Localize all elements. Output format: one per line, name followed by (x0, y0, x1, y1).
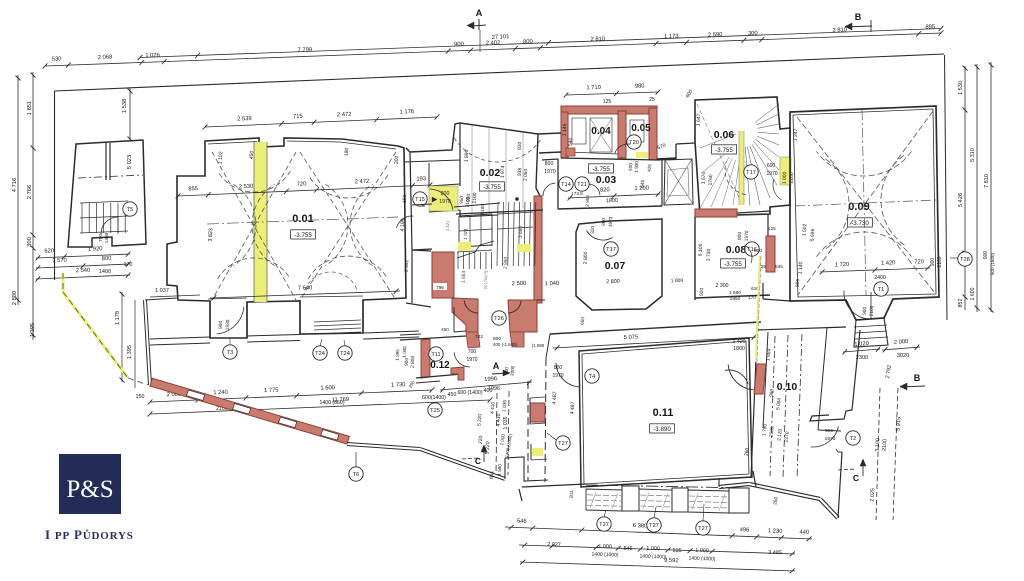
svg-text:800: 800 (523, 39, 533, 45)
svg-text:T6: T6 (353, 472, 360, 478)
svg-text:1800: 1800 (733, 346, 745, 352)
svg-text:1 000: 1 000 (782, 171, 789, 184)
svg-text:P&S: P&S (66, 476, 113, 503)
svg-text:1 974: 1 974 (500, 165, 507, 178)
svg-text:T28: T28 (960, 257, 970, 263)
svg-text:1 176: 1 176 (399, 109, 414, 116)
svg-text:806: 806 (795, 278, 801, 287)
svg-text:1 775: 1 775 (264, 387, 279, 394)
svg-text:11 769: 11 769 (332, 397, 350, 404)
svg-text:1 173: 1 173 (664, 34, 679, 41)
svg-text:545: 545 (623, 546, 632, 552)
svg-text:3 485: 3 485 (768, 550, 782, 556)
svg-text:2 025: 2 025 (870, 488, 877, 502)
svg-text:T17: T17 (606, 247, 616, 253)
svg-text:1 720: 1 720 (835, 262, 850, 269)
svg-text:T15: T15 (415, 197, 425, 203)
svg-text:855: 855 (188, 186, 198, 192)
svg-text:0.01: 0.01 (292, 213, 313, 225)
svg-text:5 696: 5 696 (810, 228, 817, 241)
svg-text:0.06: 0.06 (714, 129, 735, 141)
svg-text:5 428: 5 428 (958, 193, 964, 207)
svg-text:2100: 2100 (869, 305, 876, 316)
svg-text:1970: 1970 (766, 171, 777, 177)
svg-text:700: 700 (98, 234, 104, 242)
svg-text:I PP PŮDORYS: I PP PŮDORYS (45, 527, 134, 542)
svg-text:450: 450 (441, 327, 449, 332)
svg-text:-3.755: -3.755 (483, 184, 501, 191)
svg-text:2 590: 2 590 (708, 32, 723, 39)
svg-text:200: 200 (394, 155, 400, 164)
svg-text:1970: 1970 (544, 169, 556, 175)
svg-text:2100: 2100 (472, 192, 479, 203)
svg-text:320: 320 (590, 226, 595, 234)
svg-text:1 570: 1 570 (52, 258, 67, 265)
svg-text:1 670: 1 670 (701, 171, 708, 184)
svg-text:1 900: 1 900 (634, 161, 640, 173)
svg-text:3 680: 3 680 (518, 225, 525, 238)
svg-text:1 890: 1 890 (464, 149, 471, 162)
svg-text:700: 700 (468, 349, 477, 355)
svg-text:715: 715 (293, 114, 303, 120)
svg-text:2 766: 2 766 (27, 185, 33, 200)
svg-text:620: 620 (44, 248, 54, 254)
svg-text:1 502: 1 502 (802, 223, 809, 236)
svg-text:300: 300 (748, 31, 758, 37)
svg-text:5 915: 5 915 (896, 417, 903, 431)
svg-text:A: A (476, 8, 483, 18)
svg-text:3 100: 3 100 (875, 438, 882, 452)
svg-text:173,5: 173,5 (571, 191, 583, 196)
svg-text:T27: T27 (599, 522, 609, 528)
svg-text:920: 920 (699, 287, 705, 296)
svg-text:9 592: 9 592 (664, 558, 679, 564)
svg-text:545: 545 (640, 179, 646, 188)
svg-text:T27: T27 (649, 523, 659, 529)
svg-text:2 552: 2 552 (404, 259, 411, 272)
svg-text:T27: T27 (558, 441, 568, 447)
svg-text:1 121: 1 121 (445, 220, 451, 231)
svg-text:2 800: 2 800 (606, 279, 620, 285)
svg-text:T3: T3 (227, 350, 234, 356)
svg-text:1 037: 1 037 (155, 288, 169, 294)
svg-text:180: 180 (344, 147, 350, 156)
svg-text:125: 125 (768, 226, 776, 231)
svg-text:5 023: 5 023 (127, 155, 133, 170)
svg-text:1930: 1930 (225, 319, 232, 330)
svg-text:T20: T20 (629, 140, 639, 146)
svg-text:2 800: 2 800 (410, 355, 417, 368)
svg-text:T2: T2 (850, 436, 857, 442)
svg-text:2 027: 2 027 (547, 542, 561, 548)
svg-text:1970: 1970 (608, 216, 614, 227)
svg-text:7 640: 7 640 (298, 285, 313, 292)
svg-text:440: 440 (799, 530, 809, 536)
svg-text:600: 600 (493, 336, 501, 342)
svg-text:1 653: 1 653 (461, 270, 468, 283)
svg-text:1400: 1400 (99, 269, 111, 275)
svg-text:600(1400): 600(1400) (422, 395, 446, 401)
svg-text:900: 900 (454, 42, 464, 48)
svg-text:-3.730: -3.730 (851, 220, 869, 227)
svg-text:6 380: 6 380 (633, 523, 648, 530)
svg-text:1 021: 1 021 (463, 228, 469, 240)
svg-text:852: 852 (958, 299, 964, 308)
svg-text:T27: T27 (698, 526, 708, 532)
svg-text:1 600: 1 600 (970, 287, 976, 300)
svg-text:T5: T5 (127, 207, 134, 213)
svg-text:1 240: 1 240 (213, 390, 228, 397)
svg-text:-3.755: -3.755 (724, 261, 742, 268)
svg-text:-3.755: -3.755 (715, 147, 733, 154)
svg-text:796: 796 (436, 285, 444, 290)
svg-text:170: 170 (124, 262, 133, 268)
svg-text:1 395: 1 395 (127, 345, 133, 359)
svg-text:-3.755: -3.755 (294, 232, 312, 239)
svg-text:450: 450 (448, 392, 457, 398)
svg-text:T14: T14 (561, 182, 571, 188)
svg-text:530: 530 (52, 56, 62, 62)
svg-text:C: C (475, 456, 481, 466)
svg-text:0.03: 0.03 (596, 174, 617, 186)
svg-text:1 178: 1 178 (115, 311, 121, 325)
svg-text:3 823: 3 823 (208, 228, 215, 242)
svg-text:1 395: 1 395 (395, 349, 401, 361)
svg-text:2100: 2100 (882, 439, 889, 451)
svg-text:4 410: 4 410 (489, 401, 496, 414)
svg-text:1 530: 1 530 (958, 81, 964, 95)
svg-text:2 990: 2 990 (503, 256, 510, 269)
svg-text:0.12: 0.12 (430, 360, 450, 371)
svg-text:800: 800 (737, 231, 743, 240)
svg-text:1 140: 1 140 (798, 261, 805, 274)
svg-text:193: 193 (402, 194, 408, 203)
svg-text:2 000: 2 000 (894, 339, 909, 346)
svg-text:2 880: 2 880 (12, 291, 18, 306)
svg-text:2 402: 2 402 (486, 40, 501, 47)
svg-text:2 810: 2 810 (590, 36, 605, 43)
svg-text:1 000: 1 000 (646, 546, 660, 552)
svg-text:B: B (855, 12, 862, 22)
svg-text:A: A (493, 361, 500, 371)
svg-text:1 395: 1 395 (30, 323, 36, 338)
svg-text:1 102: 1 102 (218, 151, 225, 164)
svg-text:150: 150 (136, 394, 145, 400)
svg-text:193: 193 (416, 176, 426, 182)
svg-text:2 472: 2 472 (355, 179, 370, 186)
svg-text:2 050: 2 050 (523, 168, 530, 181)
svg-text:T24: T24 (340, 351, 350, 357)
svg-text:400 (-1.840): 400 (-1.840) (493, 342, 517, 347)
svg-text:1970: 1970 (552, 373, 563, 379)
svg-text:820: 820 (600, 187, 610, 193)
svg-text:2 300: 2 300 (716, 283, 729, 289)
svg-text:900: 900 (218, 320, 224, 329)
svg-text:1 000: 1 000 (671, 278, 684, 284)
svg-text:1 420: 1 420 (881, 260, 896, 267)
svg-text:4 487: 4 487 (570, 401, 577, 414)
svg-text:1350: 1350 (104, 232, 110, 243)
svg-text:1 730: 1 730 (391, 382, 406, 389)
svg-text:1 035: 1 035 (503, 416, 509, 429)
svg-text:900: 900 (504, 366, 510, 375)
svg-text:1996: 1996 (484, 376, 497, 383)
svg-text:800: 800 (102, 256, 112, 262)
svg-text:7 810: 7 810 (984, 174, 990, 188)
svg-text:0.09: 0.09 (848, 201, 869, 213)
svg-text:1 145: 1 145 (562, 123, 569, 136)
svg-text:220: 220 (478, 435, 485, 444)
svg-text:2 540: 2 540 (76, 268, 91, 275)
svg-text:980: 980 (635, 83, 645, 89)
svg-text:5 310: 5 310 (970, 148, 976, 162)
svg-text:0.05: 0.05 (631, 123, 651, 134)
svg-text:1 580: 1 580 (729, 290, 741, 296)
svg-text:650: 650 (580, 317, 585, 325)
svg-text:T25: T25 (430, 408, 440, 414)
svg-text:6 100: 6 100 (698, 243, 705, 256)
svg-text:1 580: 1 580 (497, 463, 503, 475)
svg-text:496: 496 (739, 527, 749, 533)
svg-text:T17: T17 (746, 170, 756, 176)
svg-text:900: 900 (983, 251, 989, 260)
svg-text:0.08: 0.08 (726, 244, 747, 256)
svg-text:T26: T26 (494, 316, 504, 322)
svg-text:720: 720 (297, 181, 307, 187)
svg-text:0.04: 0.04 (591, 126, 611, 137)
svg-text:-3.755: -3.755 (592, 166, 610, 173)
svg-text:2 068: 2 068 (98, 55, 113, 62)
svg-text:800: 800 (545, 161, 554, 167)
svg-text:980: 980 (769, 388, 776, 397)
svg-text:1 651: 1 651 (27, 101, 33, 116)
svg-text:1400 (1000): 1400 (1000) (688, 556, 715, 563)
svg-text:1970: 1970 (744, 230, 751, 241)
svg-text:600: 600 (767, 163, 776, 169)
svg-text:2 500: 2 500 (512, 281, 527, 288)
svg-text:125: 125 (603, 99, 612, 105)
svg-text:1 026: 1 026 (145, 53, 160, 60)
svg-text:1400 (1000): 1400 (1000) (639, 554, 666, 561)
svg-text:T11: T11 (431, 352, 440, 358)
svg-text:2 530: 2 530 (239, 184, 254, 191)
svg-text:2 539: 2 539 (237, 116, 252, 123)
svg-text:5 220: 5 220 (476, 413, 483, 426)
svg-text:1 420: 1 420 (733, 339, 746, 345)
svg-text:900: 900 (404, 357, 410, 366)
svg-text:720: 720 (914, 259, 924, 265)
svg-text:1 600: 1 600 (320, 385, 335, 392)
svg-text:1 710: 1 710 (586, 85, 601, 91)
svg-text:0.02: 0.02 (480, 167, 501, 179)
svg-text:1 230: 1 230 (768, 528, 783, 535)
svg-text:5 075: 5 075 (624, 334, 639, 341)
svg-text:1970: 1970 (825, 436, 836, 442)
svg-text:25: 25 (649, 97, 655, 103)
svg-text:800: 800 (601, 218, 606, 226)
svg-text:1 045: 1 045 (402, 346, 408, 358)
svg-text:546: 546 (517, 519, 527, 525)
svg-text:4 487: 4 487 (552, 391, 559, 404)
svg-text:4 716: 4 716 (12, 178, 18, 193)
svg-text:2 955: 2 955 (585, 195, 591, 207)
svg-text:300: 300 (27, 237, 33, 247)
svg-text:600: 600 (754, 248, 762, 254)
svg-text:5 220: 5 220 (485, 441, 492, 454)
svg-text:950: 950 (459, 196, 464, 204)
svg-text:0.10: 0.10 (777, 381, 798, 393)
svg-text:2 800: 2 800 (583, 251, 590, 264)
svg-text:450: 450 (249, 150, 255, 159)
svg-text:T1: T1 (878, 287, 885, 293)
svg-text:1 000: 1 000 (695, 548, 709, 554)
svg-text:600: 600 (628, 163, 633, 171)
svg-text:2 730: 2 730 (706, 248, 713, 261)
svg-text:1 647: 1 647 (696, 113, 703, 126)
svg-text:T4: T4 (589, 374, 596, 380)
svg-text:800: 800 (554, 365, 563, 371)
svg-text:742: 742 (475, 334, 483, 340)
svg-text:2100: 2100 (465, 196, 471, 207)
svg-text:1996: 1996 (488, 386, 500, 392)
svg-text:170: 170 (748, 295, 756, 300)
svg-text:3020: 3020 (897, 353, 909, 359)
svg-text:500 (1600): 500 (1600) (990, 252, 995, 275)
svg-text:1 040: 1 040 (545, 281, 560, 288)
svg-text:0.07: 0.07 (605, 260, 626, 272)
svg-text:800: 800 (441, 191, 450, 197)
svg-text:545: 545 (775, 264, 783, 269)
svg-text:260: 260 (744, 447, 751, 456)
svg-text:1970: 1970 (466, 357, 477, 363)
svg-text:-3.890: -3.890 (653, 426, 671, 433)
svg-text:T21: T21 (577, 182, 587, 188)
svg-text:1800: 1800 (606, 198, 618, 204)
svg-text:0.11: 0.11 (653, 407, 674, 419)
svg-text:B: B (914, 373, 921, 383)
svg-text:2000: 2000 (510, 365, 516, 376)
svg-text:820: 820 (517, 141, 523, 150)
svg-text:938: 938 (517, 167, 523, 176)
svg-text:1 000: 1 000 (598, 544, 612, 550)
svg-text:425: 425 (647, 164, 652, 172)
svg-text:895: 895 (925, 24, 935, 30)
svg-text:1 035: 1 035 (501, 399, 508, 412)
svg-text:1950: 1950 (730, 296, 741, 302)
svg-text:3 810: 3 810 (832, 27, 847, 34)
svg-text:T24: T24 (315, 351, 325, 357)
svg-text:1 538: 1 538 (122, 99, 128, 114)
svg-text:900: 900 (862, 306, 868, 315)
svg-text:C: C (853, 473, 859, 483)
svg-text:2400: 2400 (874, 275, 886, 281)
svg-text:535: 535 (672, 548, 681, 554)
svg-text:7 799: 7 799 (297, 47, 312, 54)
svg-text:(1 690: (1 690 (532, 343, 545, 348)
svg-text:2 472: 2 472 (337, 112, 352, 119)
svg-text:811: 811 (569, 490, 575, 498)
svg-text:1760: 1760 (708, 174, 715, 186)
svg-text:1400 (1000): 1400 (1000) (591, 552, 618, 559)
svg-text:540: 540 (568, 137, 574, 146)
svg-text:600 (1400): 600 (1400) (457, 390, 482, 396)
